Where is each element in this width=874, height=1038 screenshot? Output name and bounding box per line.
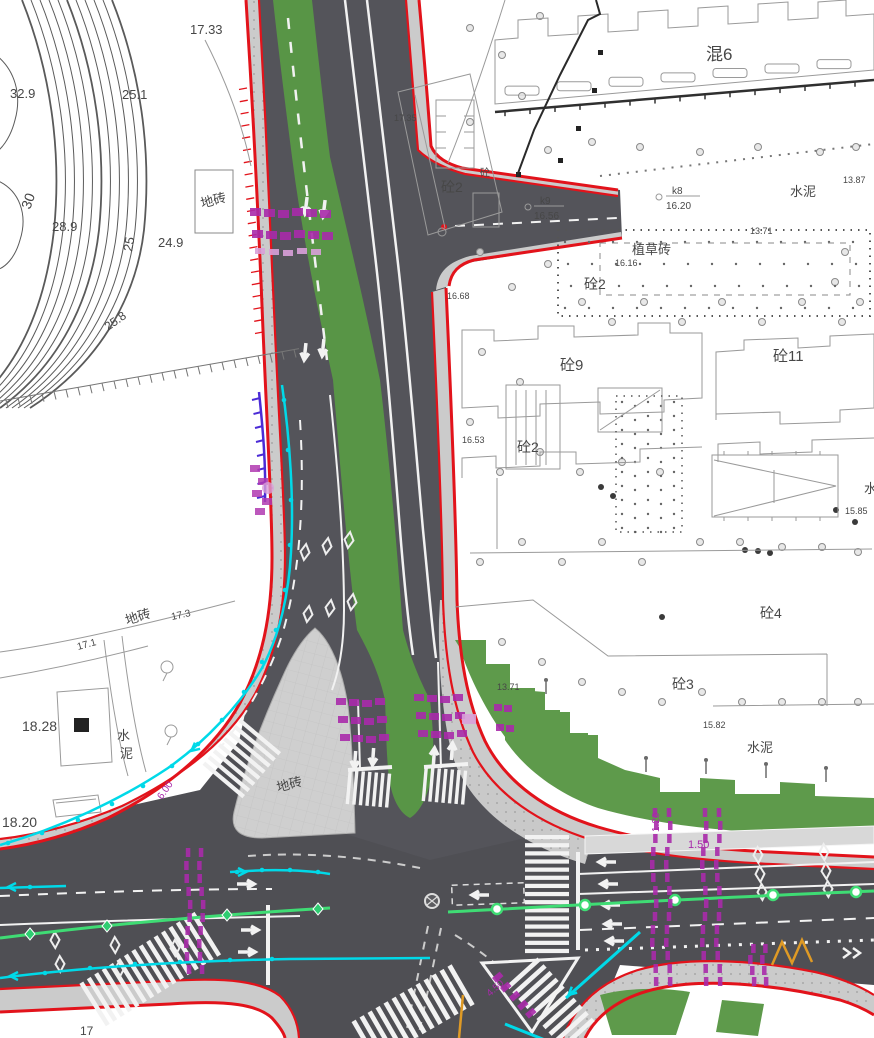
paver-dot <box>621 429 623 431</box>
paver-dot <box>621 401 623 403</box>
magenta-stamp <box>667 808 672 817</box>
cyan-node <box>288 868 293 873</box>
magenta-stamp <box>351 717 361 724</box>
magenta-stamp <box>340 734 350 741</box>
paver-dot <box>732 307 734 309</box>
paver-dot <box>690 285 692 287</box>
tree-symbol <box>499 639 506 646</box>
paver-dot <box>855 263 857 265</box>
magenta-stamp <box>494 704 502 711</box>
map-label: 16.20 <box>666 201 691 212</box>
tree-symbol <box>467 119 474 126</box>
paver-dot <box>714 285 716 287</box>
map-label: 17 <box>80 1024 94 1038</box>
cyan-node <box>316 870 321 875</box>
paver-dot <box>858 285 860 287</box>
map-label: 15.82 <box>703 720 726 730</box>
magenta-stamp <box>199 848 204 857</box>
magenta-stamp <box>278 210 289 218</box>
cyan-node <box>274 628 279 633</box>
map-label: 水 <box>117 728 130 743</box>
magenta-stamp <box>200 913 205 922</box>
magenta-stamp <box>651 951 656 960</box>
magenta-blob <box>255 508 265 515</box>
paver-dot <box>804 307 806 309</box>
crosswalk <box>525 835 569 953</box>
paver-dot <box>786 285 788 287</box>
magenta-stamp <box>704 899 709 908</box>
paver-dot <box>570 285 572 287</box>
magenta-stamp <box>453 694 463 701</box>
magenta-stamp <box>506 725 514 732</box>
paver-dot <box>711 263 713 265</box>
cyan-node <box>228 958 233 963</box>
paver-dot <box>647 513 649 515</box>
magenta-stamp <box>185 926 190 935</box>
magenta-stamp <box>668 899 673 908</box>
magenta-stamp <box>201 900 206 909</box>
dark-marker <box>767 550 773 556</box>
paver-dot <box>634 489 636 491</box>
tree-symbol <box>853 144 860 151</box>
green-ring-node <box>492 904 502 914</box>
paver-dot <box>660 461 662 463</box>
cyan-node <box>178 960 183 965</box>
dark-marker <box>852 519 858 525</box>
map-label: 混6 <box>706 45 732 64</box>
magenta-stamp <box>366 736 376 743</box>
magenta-stamp <box>714 860 719 869</box>
magenta-stamp <box>198 926 203 935</box>
green-ring-node <box>851 887 861 897</box>
magenta-stamp <box>703 886 708 895</box>
tree-symbol <box>599 539 606 546</box>
map-label: 18.28 <box>22 718 57 734</box>
fence-post <box>598 50 603 55</box>
magenta-stamp <box>504 705 512 712</box>
magenta-stamp <box>364 718 374 725</box>
map-label: 17.33 <box>190 22 223 37</box>
cyan-node <box>28 885 33 890</box>
magenta-stamp <box>667 964 672 973</box>
map-label: 1.20 <box>651 812 662 832</box>
magenta-stamp <box>199 887 204 896</box>
cyan-node <box>270 957 275 962</box>
magenta-stamp <box>653 834 658 843</box>
cyan-node <box>88 966 93 971</box>
paver-dot <box>828 307 830 309</box>
magenta-stamp <box>717 912 722 921</box>
magenta-stamp <box>187 913 192 922</box>
tree-symbol <box>609 319 616 326</box>
cyan-node <box>282 398 287 403</box>
magenta-stamp <box>651 847 656 856</box>
magenta-stamp <box>653 964 658 973</box>
map-label: k9 <box>540 196 551 207</box>
magenta-stamp <box>760 955 765 964</box>
tree-symbol <box>467 419 474 426</box>
magenta-stamp <box>198 952 203 961</box>
map-label: 水泥 <box>790 184 816 199</box>
map-label: 17.35 <box>394 113 417 123</box>
magenta-stamp <box>703 912 708 921</box>
tree-symbol <box>779 699 786 706</box>
magenta-stamp <box>654 899 659 908</box>
paver-dot <box>810 285 812 287</box>
cyan-node <box>260 868 265 873</box>
paver-dot <box>852 241 854 243</box>
paver-dot <box>831 263 833 265</box>
magenta-stamp <box>664 860 669 869</box>
cyan-node <box>220 718 225 723</box>
tree-symbol <box>479 349 486 356</box>
magenta-stamp <box>668 977 673 986</box>
paver-dot <box>762 285 764 287</box>
paver-dot <box>663 263 665 265</box>
paver-dot <box>673 443 675 445</box>
zebra-stripe <box>525 876 569 880</box>
paver-dot <box>647 429 649 431</box>
magenta-stamp <box>717 964 722 973</box>
paver-dot <box>621 457 623 459</box>
plan-canvas: 17.3332.925.13028.92524.925.8地砖17.35砼2砼混… <box>0 0 874 1038</box>
map-label: 泥 <box>120 746 133 761</box>
fence-post <box>592 88 597 93</box>
paver-dot <box>642 285 644 287</box>
tree-symbol <box>641 299 648 306</box>
magenta-stamp <box>427 695 437 702</box>
cyan-node <box>141 784 146 789</box>
magenta-stamp <box>264 209 275 217</box>
magenta-stamp <box>252 230 263 238</box>
dark-marker <box>598 484 604 490</box>
magenta-stamp <box>665 951 670 960</box>
map-label: 砼4 <box>760 605 782 621</box>
magenta-stamp <box>665 925 670 934</box>
paver-dot <box>647 415 649 417</box>
paver-dot <box>591 263 593 265</box>
tree-symbol <box>832 279 839 286</box>
tree-symbol <box>755 144 762 151</box>
magenta-stamp <box>748 955 753 964</box>
magenta-stamp <box>717 886 722 895</box>
tree-symbol <box>697 539 704 546</box>
magenta-stamp <box>431 731 441 738</box>
zebra-stripe <box>525 892 569 896</box>
map-label: k8 <box>672 186 683 197</box>
magenta-stamp <box>653 912 658 921</box>
zebra-stripe <box>525 924 569 928</box>
paver-dot <box>647 471 649 473</box>
magenta-stamp <box>375 698 385 705</box>
cyan-node <box>43 971 48 976</box>
paver-dot <box>634 517 636 519</box>
magenta-stamp <box>379 734 389 741</box>
tree-symbol <box>799 299 806 306</box>
map-label: 25.1 <box>122 87 147 102</box>
map-label: 16.68 <box>447 291 470 301</box>
magenta-stamp <box>184 874 189 883</box>
tree-symbol <box>509 284 516 291</box>
magenta-stamp <box>414 694 424 701</box>
magenta-stamp <box>718 977 723 986</box>
magenta-stamp <box>667 886 672 895</box>
paver-dot <box>834 285 836 287</box>
paver-dot <box>647 457 649 459</box>
magenta-stamp <box>650 860 655 869</box>
magenta-stamp <box>269 249 279 255</box>
magenta-stamp <box>200 965 205 974</box>
tree-symbol <box>545 261 552 268</box>
map-label: 砼2 <box>441 179 463 195</box>
paver-dot <box>660 503 662 505</box>
magenta-stamp <box>704 977 709 986</box>
magenta-stamp <box>752 977 757 986</box>
map-label: 13.71 <box>497 682 520 692</box>
magenta-stamp <box>703 964 708 973</box>
paver-dot <box>673 429 675 431</box>
cyan-node <box>242 690 247 695</box>
magenta-stamp <box>717 834 722 843</box>
zebra-stripe <box>525 843 569 847</box>
magenta-stamp <box>715 951 720 960</box>
map-label: 25 <box>120 236 137 253</box>
cyan-node <box>133 962 138 967</box>
tree-symbol <box>477 249 484 256</box>
paver-dot <box>634 433 636 435</box>
paver-dot <box>647 499 649 501</box>
paver-dot <box>687 263 689 265</box>
lamp-pole-icon <box>764 762 768 766</box>
map-label: 24.9 <box>158 235 183 250</box>
tree-symbol <box>539 659 546 666</box>
magenta-stamp <box>188 900 193 909</box>
magenta-stamp <box>718 821 723 830</box>
paver-dot <box>660 307 662 309</box>
tree-symbol <box>839 319 846 326</box>
magenta-stamp <box>377 716 387 723</box>
magenta-stamp <box>311 249 321 255</box>
magenta-stamp <box>715 847 720 856</box>
map-label: 砼3 <box>672 676 694 692</box>
tree-symbol <box>759 319 766 326</box>
cyan-node <box>283 588 288 593</box>
magenta-stamp <box>764 977 769 986</box>
tree-symbol <box>657 469 664 476</box>
magenta-stamp <box>665 847 670 856</box>
paver-dot <box>673 527 675 529</box>
paver-dot <box>634 503 636 505</box>
tree-symbol <box>519 93 526 100</box>
paver-dot <box>564 307 566 309</box>
magenta-stamp <box>717 808 722 817</box>
paver-dot <box>673 499 675 501</box>
magenta-stamp <box>718 899 723 908</box>
paver-dot <box>684 307 686 309</box>
magenta-stamp <box>653 886 658 895</box>
cyan-node <box>286 448 291 453</box>
magenta-stamp <box>418 730 428 737</box>
map-label: 砼2 <box>584 276 606 292</box>
magenta-stamp <box>654 977 659 986</box>
paver-dot <box>621 527 623 529</box>
magenta-stamp <box>444 732 454 739</box>
magenta-stamp <box>700 860 705 869</box>
fence-post <box>576 126 581 131</box>
map-label: 植草砖 <box>632 242 671 257</box>
paver-dot <box>783 263 785 265</box>
paver-dot <box>621 499 623 501</box>
magenta-stamp <box>700 938 705 947</box>
paver-dot <box>588 241 590 243</box>
cyan-node <box>76 818 81 823</box>
dark-marker <box>755 548 761 554</box>
magenta-stamp <box>336 698 346 705</box>
paver-dot <box>673 513 675 515</box>
magenta-stamp <box>763 944 768 953</box>
tree-symbol <box>477 559 484 566</box>
magenta-stamp <box>701 925 706 934</box>
dark-marker <box>610 493 616 499</box>
tree-symbol <box>589 139 596 146</box>
magenta-stamp <box>668 821 673 830</box>
paver-dot <box>660 517 662 519</box>
map-label: 水 <box>864 481 874 496</box>
magenta-stamp <box>714 938 719 947</box>
zebra-stripe <box>525 868 569 872</box>
zebra-stripe <box>525 941 569 945</box>
magenta-stamp <box>320 210 331 218</box>
cyan-node <box>40 831 45 836</box>
paver-dot <box>588 307 590 309</box>
paver-dot <box>759 263 761 265</box>
tree-symbol <box>842 249 849 256</box>
magenta-stamp <box>322 232 333 240</box>
tree-symbol <box>817 149 824 156</box>
magenta-stamp <box>440 696 450 703</box>
magenta-stamp <box>197 874 202 883</box>
map-label: 16.53 <box>462 435 485 445</box>
map-label: 32.9 <box>10 86 35 101</box>
paver-dot <box>621 471 623 473</box>
paver-dot <box>673 401 675 403</box>
plot-building <box>74 718 89 732</box>
cyan-node <box>6 841 11 846</box>
paver-dot <box>660 475 662 477</box>
magenta-stamp <box>667 834 672 843</box>
paver-dot <box>660 531 662 533</box>
paver-dot <box>708 307 710 309</box>
tree-symbol <box>637 144 644 151</box>
paver-dot <box>738 285 740 287</box>
magenta-stamp <box>704 821 709 830</box>
paver-dot <box>673 471 675 473</box>
tree-symbol <box>579 299 586 306</box>
tree-symbol <box>619 689 626 696</box>
paver-dot <box>567 263 569 265</box>
lamp-pole-icon <box>544 678 548 682</box>
paver-dot <box>618 285 620 287</box>
magenta-stamp <box>349 699 359 706</box>
magenta-stamp <box>184 939 189 948</box>
map-label: 砼2 <box>517 439 539 455</box>
tree-symbol <box>639 559 646 566</box>
magenta-stamp <box>650 938 655 947</box>
paver-dot <box>807 263 809 265</box>
green-ring-node <box>768 890 778 900</box>
lamp-pole-icon <box>824 766 828 770</box>
map-label: 砼11 <box>773 348 804 365</box>
tree-symbol <box>499 52 506 59</box>
paver-dot <box>647 527 649 529</box>
magenta-blob <box>250 465 260 472</box>
paver-dot <box>636 307 638 309</box>
magenta-stamp <box>715 873 720 882</box>
paver-dot <box>673 415 675 417</box>
magenta-stamp <box>496 724 504 731</box>
paver-dot <box>621 443 623 445</box>
magenta-stamp <box>297 248 307 254</box>
magenta-blob <box>462 714 476 724</box>
magenta-stamp <box>457 730 467 737</box>
magenta-stamp <box>651 925 656 934</box>
map-label: 16.56 <box>534 211 559 222</box>
tree-symbol <box>697 149 704 156</box>
magenta-stamp <box>186 887 191 896</box>
magenta-stamp <box>187 965 192 974</box>
paver-dot <box>666 285 668 287</box>
zebra-stripe <box>525 949 569 953</box>
magenta-stamp <box>715 925 720 934</box>
magenta-stamp <box>362 700 372 707</box>
zebra-stripe <box>525 900 569 904</box>
magenta-stamp <box>185 952 190 961</box>
zebra-stripe <box>525 884 569 888</box>
magenta-blob <box>262 498 272 505</box>
tree-symbol <box>579 679 586 686</box>
tree-symbol <box>519 539 526 546</box>
magenta-stamp <box>292 208 303 216</box>
magenta-stamp <box>186 848 191 857</box>
map-label: 1.50 <box>688 839 709 851</box>
magenta-stamp <box>762 966 767 975</box>
magenta-stamp <box>429 713 439 720</box>
magenta-stamp <box>338 716 348 723</box>
magenta-stamp <box>308 231 319 239</box>
paver-dot <box>639 263 641 265</box>
paper-ne <box>419 0 874 857</box>
tree-symbol <box>659 699 666 706</box>
paver-dot <box>564 241 566 243</box>
paver-dot <box>673 457 675 459</box>
green-ring-node <box>580 900 590 910</box>
map-label: 砼 <box>480 166 490 179</box>
magenta-stamp <box>750 966 755 975</box>
magenta-stamp <box>250 208 261 216</box>
paver-dot <box>660 433 662 435</box>
cyan-node <box>260 660 265 665</box>
tree-symbol <box>517 379 524 386</box>
map-label: 13.71 <box>750 226 773 236</box>
magenta-stamp <box>664 938 669 947</box>
road-plan-svg: 17.3332.925.13028.92524.925.8地砖17.35砼2砼混… <box>0 0 874 1038</box>
map-label: 13.87 <box>843 175 866 185</box>
paver-dot <box>612 307 614 309</box>
cyan-node <box>235 870 240 875</box>
cyan-node <box>170 764 175 769</box>
tree-symbol <box>679 319 686 326</box>
cyan-node <box>289 498 294 503</box>
